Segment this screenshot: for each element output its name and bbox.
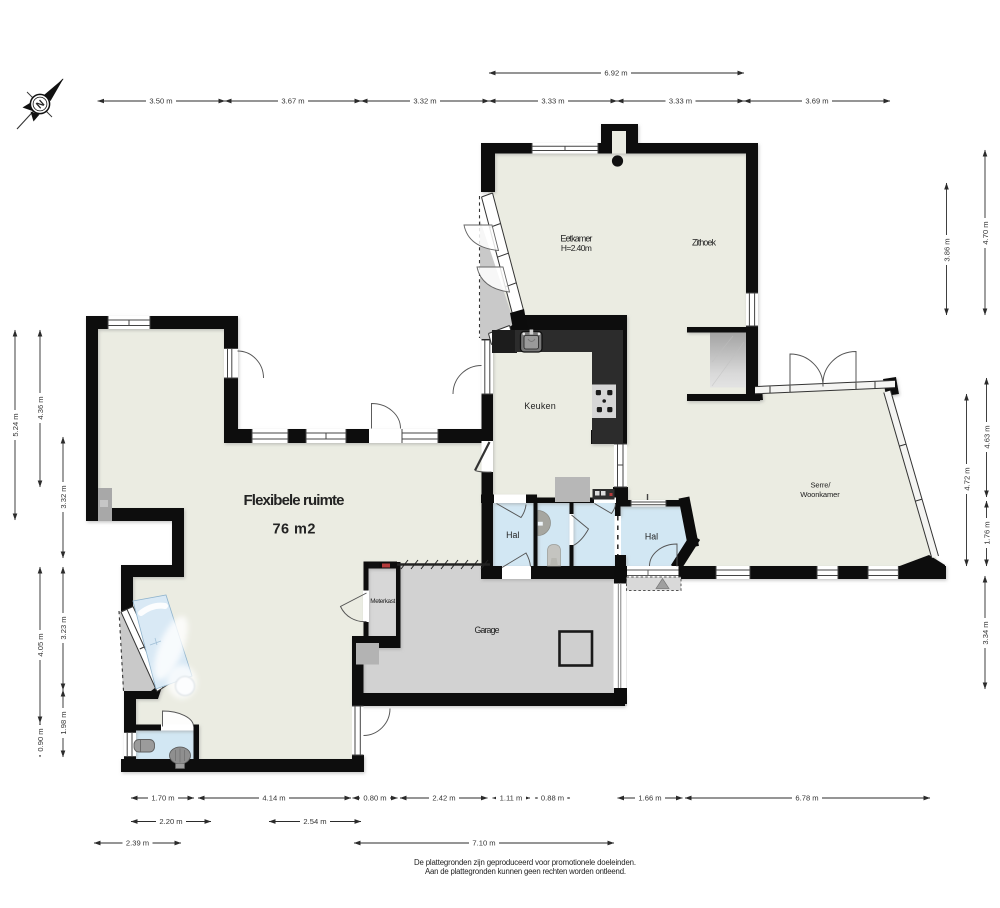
svg-text:Woonkamer: Woonkamer — [800, 490, 840, 499]
svg-text:H=2.40m: H=2.40m — [561, 243, 592, 253]
svg-text:3.34 m: 3.34 m — [981, 621, 990, 644]
svg-text:2.42 m: 2.42 m — [432, 794, 455, 803]
svg-text:2.20 m: 2.20 m — [159, 817, 182, 826]
svg-text:1.70 m: 1.70 m — [151, 794, 174, 803]
svg-text:Hal: Hal — [645, 532, 658, 542]
svg-text:3.50 m: 3.50 m — [149, 97, 172, 106]
svg-text:3.67 m: 3.67 m — [281, 97, 304, 106]
svg-text:4.70 m: 4.70 m — [981, 221, 990, 244]
svg-text:5.24 m: 5.24 m — [11, 413, 20, 436]
svg-text:4.14 m: 4.14 m — [262, 794, 285, 803]
svg-text:4.05 m: 4.05 m — [36, 633, 45, 656]
svg-text:4.63 m: 4.63 m — [982, 425, 991, 448]
svg-text:3.33 m: 3.33 m — [669, 97, 692, 106]
svg-text:Flexibele ruimte: Flexibele ruimte — [244, 492, 345, 509]
svg-text:2.39 m: 2.39 m — [126, 839, 149, 848]
svg-text:4.72 m: 4.72 m — [962, 467, 971, 490]
svg-text:1.76 m: 1.76 m — [982, 521, 991, 544]
svg-text:Hal: Hal — [506, 530, 519, 540]
svg-text:1.98 m: 1.98 m — [59, 711, 68, 734]
svg-text:Zithoek: Zithoek — [692, 237, 717, 247]
svg-text:Aan de plattegronden kunnen ge: Aan de plattegronden kunnen geen rechten… — [425, 867, 626, 876]
svg-text:Garage: Garage — [475, 625, 500, 635]
svg-text:3.86 m: 3.86 m — [942, 238, 951, 261]
svg-text:Meterkast: Meterkast — [370, 598, 395, 605]
svg-text:1.11 m: 1.11 m — [500, 794, 523, 803]
svg-text:1.66 m: 1.66 m — [638, 794, 661, 803]
svg-text:76 m2: 76 m2 — [273, 522, 316, 538]
svg-text:4.36 m: 4.36 m — [36, 396, 45, 419]
svg-text:Serre/: Serre/ — [811, 481, 832, 490]
svg-text:3.23 m: 3.23 m — [59, 616, 68, 639]
svg-text:0.90 m: 0.90 m — [36, 728, 45, 751]
svg-text:3.32 m: 3.32 m — [413, 97, 436, 106]
svg-text:6.92 m: 6.92 m — [604, 69, 627, 78]
svg-text:De plattegronden zijn geproduc: De plattegronden zijn geproduceerd voor … — [414, 858, 636, 867]
svg-text:Keuken: Keuken — [524, 401, 556, 411]
svg-text:0.80 m: 0.80 m — [363, 794, 386, 803]
svg-text:0.88 m: 0.88 m — [541, 794, 564, 803]
svg-text:2.54 m: 2.54 m — [303, 817, 326, 826]
svg-text:7.10 m: 7.10 m — [472, 839, 495, 848]
svg-text:3.33 m: 3.33 m — [541, 97, 564, 106]
svg-text:3.32 m: 3.32 m — [59, 485, 68, 508]
svg-text:Eetkamer: Eetkamer — [560, 234, 592, 244]
svg-text:3.69 m: 3.69 m — [805, 97, 828, 106]
svg-text:6.78 m: 6.78 m — [795, 794, 818, 803]
